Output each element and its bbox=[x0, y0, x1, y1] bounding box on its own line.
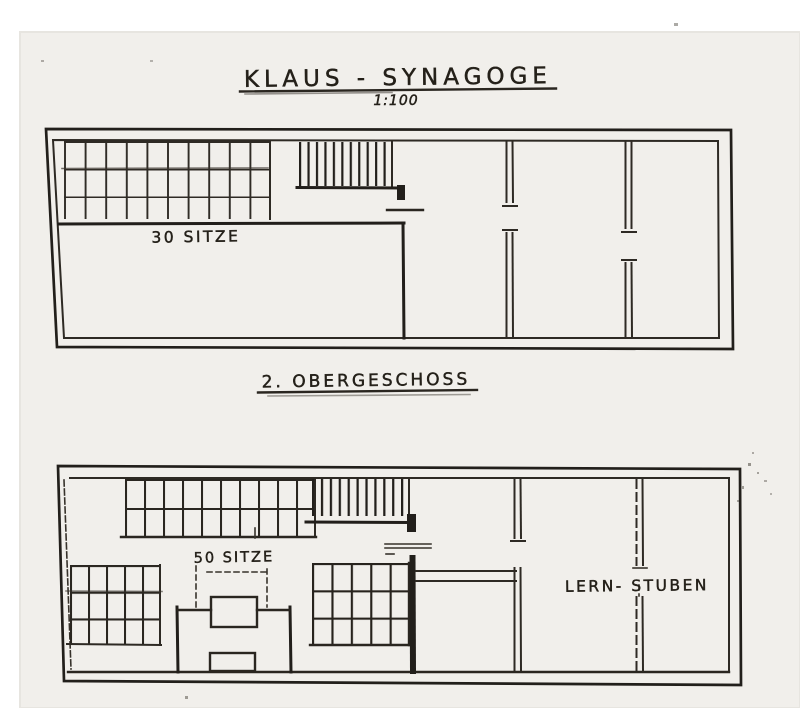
gallery-side-wall bbox=[403, 223, 404, 338]
seating-grid-east bbox=[312, 563, 409, 645]
floor-heading-label: 2. OBERGESCHOSS bbox=[262, 370, 471, 393]
scale-label: 1:100 bbox=[373, 93, 418, 109]
seats-30-label: 30 SITZE bbox=[151, 227, 240, 246]
lern-stuben-label: LERN- STUBEN bbox=[565, 576, 709, 596]
seating-grid-30 bbox=[64, 141, 270, 219]
seating-grid-rear bbox=[125, 479, 315, 537]
seating-grid-west bbox=[70, 565, 160, 645]
stair-newel bbox=[407, 514, 416, 532]
gallery-front-wall bbox=[59, 223, 404, 224]
staircase-lower bbox=[312, 478, 410, 516]
scanned-floor-plan-page: KLAUS - SYNAGOGE 1:100 bbox=[0, 0, 800, 708]
stair-landing bbox=[297, 188, 399, 189]
heavy-wall bbox=[413, 558, 414, 671]
seats-50-label: 50 SITZE bbox=[194, 549, 275, 566]
stair-newel bbox=[397, 185, 405, 200]
stair-landing bbox=[306, 522, 410, 523]
staircase-upper bbox=[299, 141, 392, 186]
